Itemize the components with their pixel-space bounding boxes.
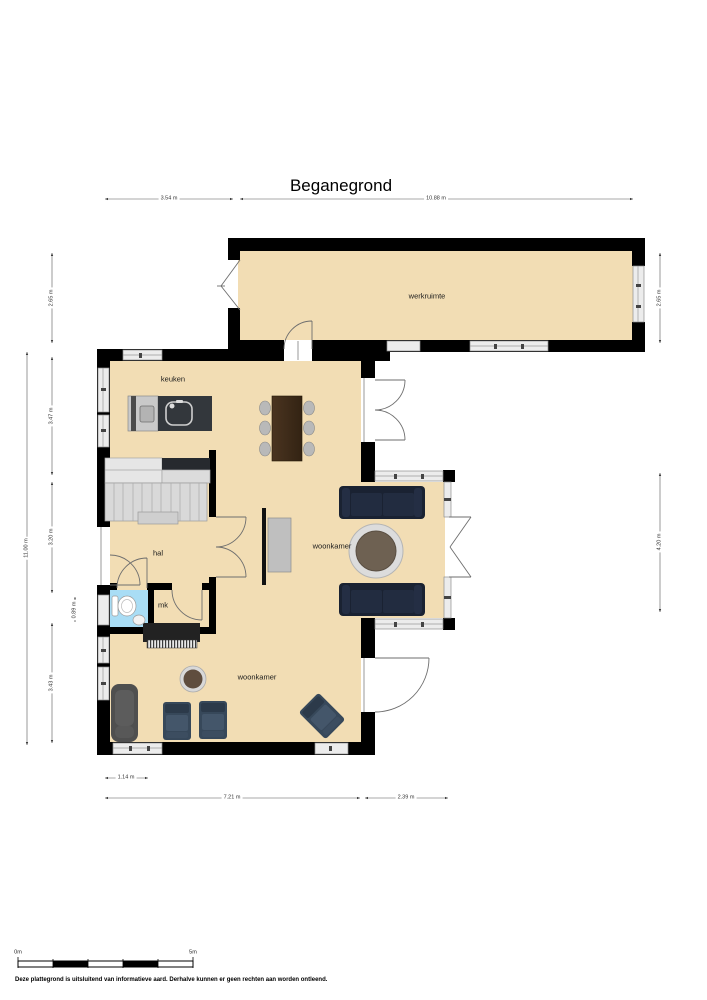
staircase [105, 483, 207, 524]
floorplan-drawing [0, 0, 707, 1000]
dim-left-keuken: 3.47 m [49, 406, 55, 427]
dim-left-outer: 11.00 m [24, 536, 30, 559]
dim-bottom-right: 2.39 m [396, 795, 417, 801]
dim-bottom-small: 1.14 m [116, 775, 137, 781]
sofa-top [339, 486, 425, 519]
room-label-hal: hal [153, 549, 163, 557]
room-label-woonkamer-upper: woonkamer [313, 542, 352, 550]
chaise-longue [111, 684, 138, 742]
dim-left-woonkamer: 3.43 m [49, 673, 55, 694]
cabinets [105, 458, 210, 483]
room-label-woonkamer-lower: woonkamer [238, 673, 277, 681]
coffee-table [349, 524, 403, 578]
scale-start-label: 0m [14, 950, 22, 956]
radiator [143, 623, 200, 648]
armchair-1 [163, 702, 191, 740]
room-label-keuken: keuken [161, 375, 185, 383]
dim-left-hal: 3.20 m [49, 527, 55, 548]
armchair-2 [199, 701, 227, 739]
dim-right-wing: 4.20 m [657, 532, 663, 553]
side-table [180, 666, 206, 692]
sideboard [268, 518, 291, 572]
dim-right-werkruimte: 2.65 m [657, 288, 663, 309]
dim-bottom-left: 7.21 m [222, 795, 243, 801]
dim-top-right: 10.88 m [424, 196, 448, 202]
tv [262, 508, 266, 585]
disclaimer-text: Deze plattegrond is uitsluitend van info… [15, 977, 327, 983]
sofa-bottom [339, 583, 425, 616]
dim-left-toilet: 0.89 m [72, 600, 78, 621]
floorplan-page: Beganegrond werkruimte keuken hal mk woo… [0, 0, 707, 1000]
room-label-werkruimte: werkruimte [409, 292, 446, 300]
kitchen-island [128, 396, 212, 431]
plan-title: Beganegrond [290, 176, 392, 196]
dining-table [260, 396, 315, 461]
dim-left-werkruimte: 2.65 m [49, 288, 55, 309]
room-label-mk: mk [158, 601, 168, 609]
dim-top-left: 3.54 m [159, 196, 180, 202]
scale-bar [18, 957, 193, 968]
scale-end-label: 5m [189, 950, 197, 956]
